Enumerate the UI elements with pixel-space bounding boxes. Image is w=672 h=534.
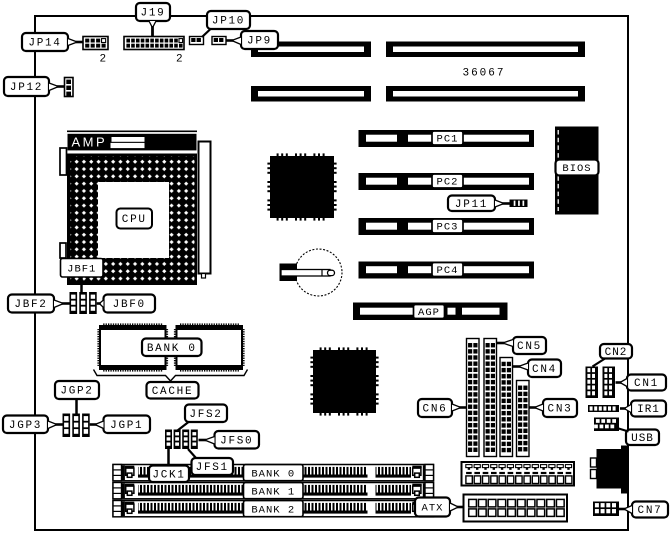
svg-text:USB: USB (631, 433, 654, 445)
svg-text:CN5: CN5 (517, 341, 542, 353)
svg-text:JP14: JP14 (28, 38, 61, 50)
svg-text:PC3: PC3 (437, 222, 459, 234)
svg-text:CN6: CN6 (423, 404, 448, 416)
svg-text:CN2: CN2 (605, 347, 628, 359)
svg-text:JFS2: JFS2 (189, 409, 222, 421)
svg-text:JFS1: JFS1 (196, 462, 229, 474)
svg-text:BANK 1: BANK 1 (251, 486, 295, 498)
svg-text:36067: 36067 (462, 68, 505, 80)
svg-text:J19: J19 (141, 8, 166, 20)
svg-text:CACHE: CACHE (152, 386, 194, 398)
svg-text:JBF2: JBF2 (14, 299, 47, 311)
svg-text:AMP: AMP (72, 135, 108, 150)
svg-text:JGP3: JGP3 (9, 420, 42, 432)
svg-text:BANK 0: BANK 0 (251, 468, 295, 480)
svg-text:CPU: CPU (122, 214, 147, 226)
svg-text:IR1: IR1 (637, 404, 660, 416)
svg-text:CN1: CN1 (634, 378, 659, 390)
svg-text:JGP1: JGP1 (110, 420, 143, 432)
svg-text:BANK 2: BANK 2 (251, 504, 295, 516)
svg-text:JP12: JP12 (10, 82, 43, 94)
svg-text:JFS0: JFS0 (220, 435, 253, 447)
svg-text:CN7: CN7 (638, 505, 663, 517)
svg-text:JBF1: JBF1 (67, 263, 96, 275)
svg-text:PC2: PC2 (437, 177, 459, 189)
svg-text:JBF0: JBF0 (113, 299, 146, 311)
svg-text:CN4: CN4 (532, 364, 557, 376)
svg-text:JCK1: JCK1 (152, 469, 185, 481)
svg-text:BIOS: BIOS (562, 163, 591, 175)
svg-text:2: 2 (176, 54, 184, 66)
svg-text:JP9: JP9 (247, 36, 272, 48)
svg-text:PC1: PC1 (437, 134, 459, 146)
svg-text:2: 2 (99, 54, 107, 66)
svg-text:ATX: ATX (422, 503, 444, 515)
svg-text:JGP2: JGP2 (60, 386, 93, 398)
svg-text:CN3: CN3 (548, 404, 573, 416)
svg-text:JP10: JP10 (212, 16, 245, 28)
svg-text:JP11: JP11 (455, 199, 488, 211)
svg-text:PC4: PC4 (437, 265, 459, 277)
svg-text:AGP: AGP (418, 307, 440, 319)
svg-text:BANK 0: BANK 0 (147, 343, 197, 355)
